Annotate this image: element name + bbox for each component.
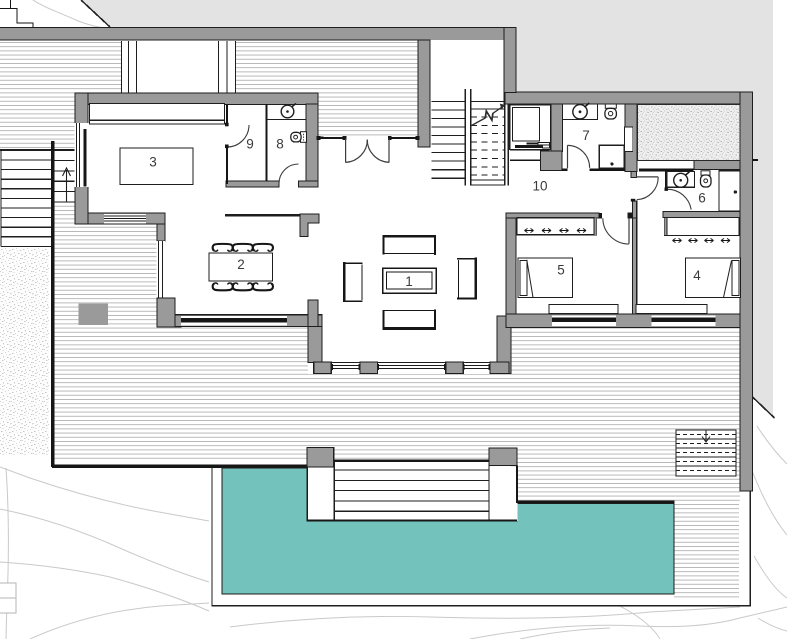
svg-text:2: 2 [237, 257, 245, 272]
svg-text:8: 8 [276, 137, 284, 152]
svg-text:6: 6 [698, 191, 706, 206]
svg-text:5: 5 [557, 263, 565, 278]
svg-text:7: 7 [582, 128, 590, 143]
svg-text:4: 4 [693, 268, 701, 283]
svg-text:1: 1 [405, 274, 413, 289]
svg-text:10: 10 [532, 179, 547, 194]
svg-text:3: 3 [149, 155, 157, 170]
svg-text:9: 9 [246, 137, 254, 152]
